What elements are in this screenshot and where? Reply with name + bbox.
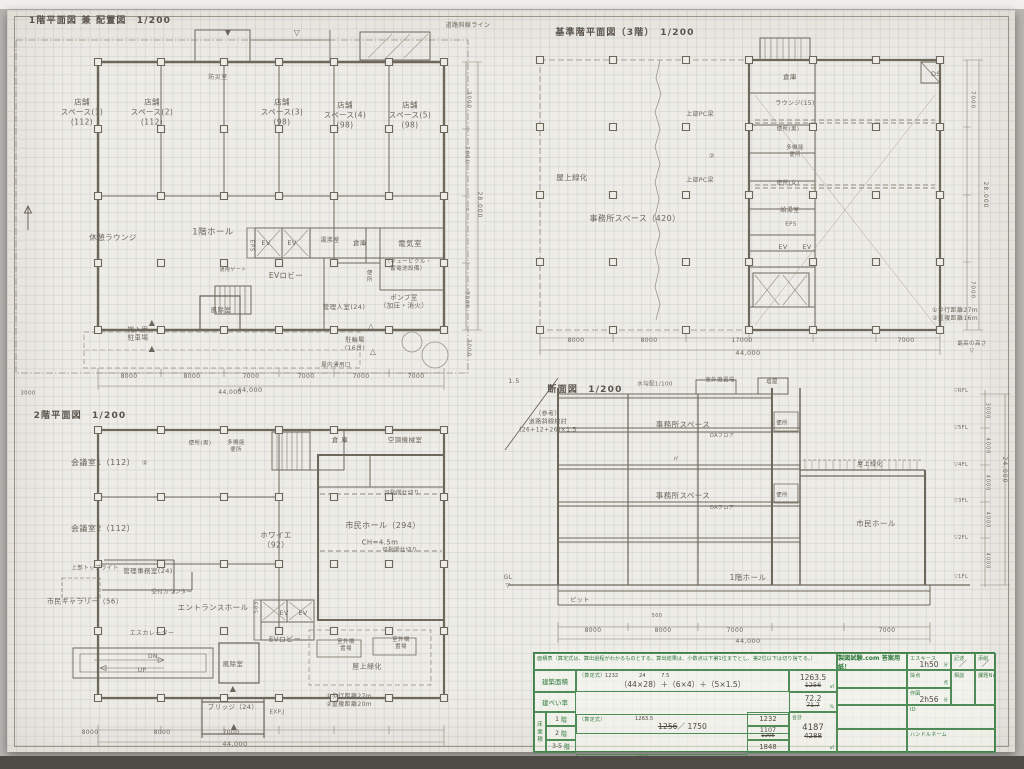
kadai-no-cell: 課題No. xyxy=(975,670,996,705)
handle-name-cell: ハンドルネーム xyxy=(907,729,996,753)
brand-label: 製図試験.com 答案用紙！ xyxy=(838,654,906,669)
building-area-result-cell: 1263.51256 ㎡ xyxy=(789,670,837,692)
form-empty-cell xyxy=(837,670,907,688)
coverage-ratio-label: 建ぺい率 xyxy=(535,693,575,711)
area-calculation-table: 面積表（算定式は、算出過程がわかるものとする。算出結果は、小数点以下第1位までと… xyxy=(533,652,995,752)
form-empty-cell xyxy=(837,688,907,705)
second-floor-plan-linework xyxy=(14,408,484,753)
sodan-cell: 相談 xyxy=(951,670,975,705)
sakuzu-time-cell: 作図 2h56 分 xyxy=(907,688,951,705)
esquisse-time-cell: エスキース 1h50 分 xyxy=(907,653,951,670)
building-area-label: 建築面積 xyxy=(535,671,575,691)
tensaku-cell: 添削 ／ xyxy=(975,653,996,670)
section-drawing-linework xyxy=(500,372,1020,652)
floor-area-total-cell: 合計 41874288 ㎡ xyxy=(789,712,837,753)
area-table-note: 面積表（算定式は、算出過程がわかるものとする。算出結果は、小数点以下第1位までと… xyxy=(534,653,837,670)
floor2-result-cell: 11071205 xyxy=(747,726,789,740)
first-floor-plan-linework xyxy=(14,28,484,380)
standard-floor-plan-linework xyxy=(505,35,985,365)
floor35-result: 1848 xyxy=(748,741,788,752)
kijutsu-cell: 記述 ／ xyxy=(951,653,975,670)
floor1-result: 1232 xyxy=(748,713,788,725)
saiten-cell: 採点 点 xyxy=(907,670,951,688)
form-empty-cell xyxy=(837,729,907,753)
photographed-drawing-sheet: 1階平面図 兼 配置図 1/200店舗 スペース(1) (112)店舗 スペース… xyxy=(0,0,1024,769)
id-cell: ID xyxy=(907,705,996,729)
floor1-formula-cell: （算定式） 1232 （44×28） xyxy=(576,754,747,768)
form-empty-cell xyxy=(837,705,907,729)
floor-area-group-label: 床面積 xyxy=(535,713,543,752)
building-area-formula-cell: （算定式） 1232 24 7.5 （44×28）＋（6×4）＋（5×1.5） xyxy=(576,670,789,692)
coverage-ratio-result-cell: 72.271.7 ％ xyxy=(789,692,837,712)
